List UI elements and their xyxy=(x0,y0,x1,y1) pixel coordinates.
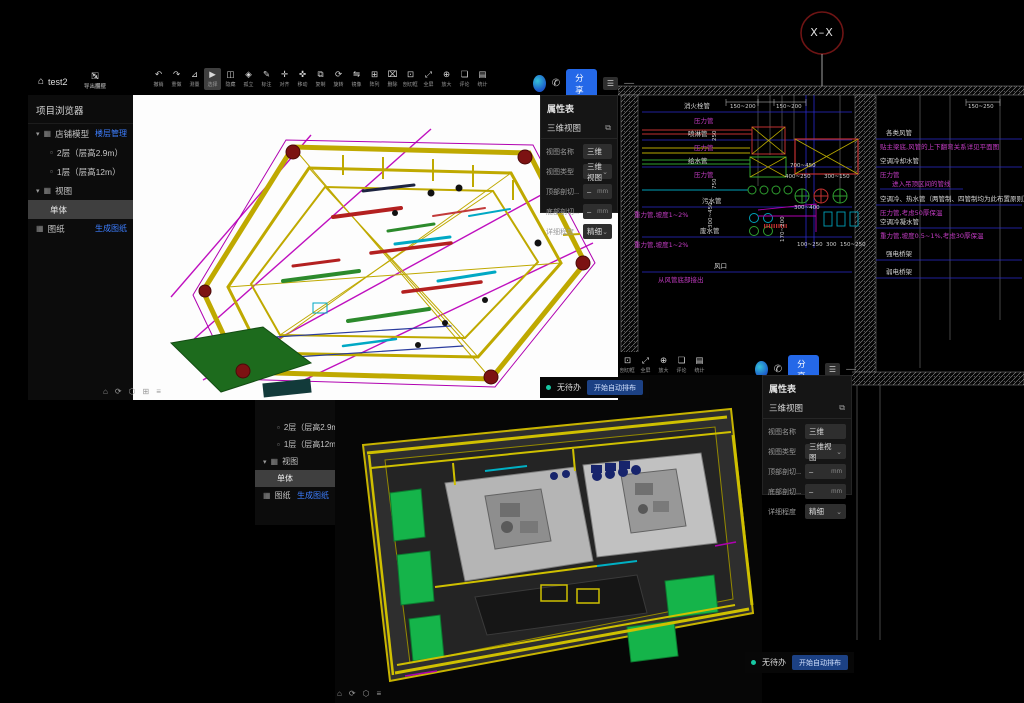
dimension-label: 150~250 xyxy=(968,104,994,110)
chevron-down-icon: ⌄ xyxy=(602,168,608,176)
cad-annotation: 强电桥架 xyxy=(886,248,912,258)
property-value[interactable]: 三维视图⌄ xyxy=(583,164,612,179)
view-control-icon[interactable]: ≡ xyxy=(377,689,382,698)
status-badge: 无待办 xyxy=(762,657,786,668)
cad-annotation: 空调冷却水管 xyxy=(880,155,919,165)
viewer-window-2: ⊡ 剖切框 ⤢ 全屏 ⊕ 放大 ❏ 评论 xyxy=(255,352,852,703)
expander-icon[interactable]: ▾ xyxy=(36,187,40,195)
toolbar-button-annotate[interactable]: ✎ 标注 xyxy=(258,68,275,90)
phone-icon[interactable]: ✆ xyxy=(774,364,782,375)
property-panel: 属性表 三维视图 ⧉ 视图名称 三维 视图类型 xyxy=(762,375,852,495)
toolbar-label: 测量 xyxy=(190,80,200,87)
toolbar-label: 标注 xyxy=(262,80,272,87)
copy-icon[interactable]: ⧉ xyxy=(839,403,845,413)
node-icon: ▦ xyxy=(36,224,44,233)
property-value[interactable]: –mm xyxy=(583,184,612,199)
toolbar-icon: ⊡ xyxy=(407,70,414,79)
dimension-label: 150~200 xyxy=(730,104,756,110)
cad-annotation: 压力管 xyxy=(694,115,714,125)
toolbar-button-undo[interactable]: ↶ 撤销 xyxy=(150,68,167,90)
project-browser-panel: 项目浏览器 ▾ ▦ 店铺模型 楼层管理 ▫ 2层（层高2.9m） xyxy=(28,95,133,400)
property-value[interactable]: 三维 xyxy=(583,144,612,159)
dimension-label: 750 xyxy=(712,179,718,190)
property-section: 三维视图 ⧉ xyxy=(763,398,851,419)
auto-route-button[interactable]: 开始自动排布 xyxy=(587,380,643,395)
copy-icon[interactable]: ⧉ xyxy=(605,123,611,133)
toolbar-button-fullscreen[interactable]: ⤢ 全屏 xyxy=(637,354,654,376)
toolbar-button-align[interactable]: ✛ 对齐 xyxy=(276,68,293,90)
toolbar-button-zoom-in[interactable]: ⊕ 放大 xyxy=(655,354,672,376)
toolbar-icon: ❏ xyxy=(678,356,686,365)
tree-item-label: 1层（层高12m） xyxy=(57,166,121,178)
view-controls: ⌂⟳⬡≡ xyxy=(337,689,381,698)
property-value[interactable]: 精细⌄ xyxy=(583,224,612,239)
toolbar-button-comment[interactable]: ❏ 评论 xyxy=(673,354,690,376)
toolbar-button-measure[interactable]: ⊿ 测量 xyxy=(186,68,203,90)
expander-icon[interactable]: ▾ xyxy=(36,130,40,138)
toolbar-button-delete[interactable]: ⌧ 删除 xyxy=(384,68,401,90)
tree-item-action-link[interactable]: 生成图纸 xyxy=(297,490,329,501)
toolbar-icon: ▶ xyxy=(209,70,216,79)
node-icon: ▦ xyxy=(44,186,52,195)
phone-icon[interactable]: ✆ xyxy=(552,78,560,89)
property-panel: 属性表 三维视图 ⧉ 视图名称 三维 视图类型 xyxy=(540,95,618,213)
property-row: 视图名称 三维 xyxy=(546,144,612,159)
dimension-label: 400~250 xyxy=(785,174,811,180)
cad-annotation: 各类风管 xyxy=(886,127,912,137)
cad-annotation: 贴主梁底,风管的上下翻弯关系详见平面图 xyxy=(880,141,999,151)
cad-annotation: 重力管,坡度0.5~1%,考虑30厚保温 xyxy=(880,230,984,240)
property-value[interactable]: –mm xyxy=(805,484,846,499)
cad-annotation: 空调冷、热水管（两管制、四管制均为此布置原则） xyxy=(880,193,1024,203)
toolbar-label: 重做 xyxy=(172,80,182,87)
toolbar-button-mirror[interactable]: ⇋ 镜像 xyxy=(348,68,365,90)
desktop: X–X 消火栓管压力管喷淋管压力管给水管压力管污水管重力管,坡度1~2%废水管重… xyxy=(0,0,1024,703)
node-icon: ▫ xyxy=(50,167,53,176)
home-icon[interactable]: ⌂ xyxy=(38,76,44,87)
toolbar-icon: ⊕ xyxy=(660,356,667,365)
toolbar-icon: ▤ xyxy=(695,356,703,365)
toolbar-label: 阵列 xyxy=(370,80,380,87)
tree-item[interactable]: ▫ 1层（层高12m） xyxy=(255,436,335,453)
property-row: 底部剖切... –mm xyxy=(546,204,612,219)
property-value[interactable]: 三维 xyxy=(805,424,846,439)
toolbar-button-move[interactable]: ✜ 移动 xyxy=(294,68,311,90)
property-row: 视图类型 三维视图⌄ xyxy=(768,444,846,459)
toolbar-icon: ⟳ xyxy=(335,70,342,79)
toolbar-icon: ◫ xyxy=(226,70,234,79)
toolbar-label: 复制 xyxy=(316,80,326,87)
toolbar-button-hide[interactable]: ◫ 隐藏 xyxy=(222,68,239,90)
tree-item[interactable]: ▫ 2层（层高2.9m） xyxy=(255,419,335,436)
toolbar-icon: ⊡ xyxy=(624,356,631,365)
toolbar-icon: ❏ xyxy=(461,70,469,79)
toolbar-button-rotate[interactable]: ⟳ 旋转 xyxy=(330,68,347,90)
property-label: 详细程度 xyxy=(768,507,801,517)
cad-annotation: 给水管 xyxy=(688,155,708,165)
view-control-icon[interactable]: ⬡ xyxy=(363,689,370,698)
toolbar-icon: ⊕ xyxy=(443,70,450,79)
view-control-icon[interactable]: ⟳ xyxy=(115,387,122,396)
node-icon: ▦ xyxy=(263,491,271,500)
dimension-label: 300 xyxy=(826,242,837,248)
tree-item[interactable]: 单体 xyxy=(28,200,133,219)
share-button[interactable]: 分享 xyxy=(566,69,597,98)
dimension-label: 250 xyxy=(712,131,718,142)
toolbar-button-array[interactable]: ⊞ 阵列 xyxy=(366,68,383,90)
cad-annotation: 空调冷凝水管 xyxy=(880,216,919,226)
toolbar-button-redo[interactable]: ↷ 重做 xyxy=(168,68,185,90)
property-rows: 视图名称 三维 视图类型 三维视图⌄ 顶部剖切... xyxy=(541,144,617,239)
status-dot xyxy=(751,660,756,665)
more-button[interactable]: — xyxy=(624,78,634,89)
file-action-button-export-model[interactable]: ⇱ 导出模型 xyxy=(84,72,106,90)
user-avatar[interactable] xyxy=(533,75,546,92)
toolbar-label: 统计 xyxy=(695,366,705,373)
property-row: 顶部剖切... –mm xyxy=(768,464,846,479)
toolbar-label: 镜像 xyxy=(352,80,362,87)
cad-annotation: 风口 xyxy=(714,260,727,270)
property-section: 三维视图 ⧉ xyxy=(541,118,617,139)
chevron-down-icon: ⌄ xyxy=(602,228,608,236)
property-label: 视图类型 xyxy=(768,447,801,457)
toolbar-label: 放大 xyxy=(442,80,452,87)
window-title: ⌂ test2 xyxy=(38,76,68,87)
dimension-label: 170~200 xyxy=(780,216,786,242)
dimension-label: 300~400 xyxy=(794,205,820,211)
toolbar-icon: ▤ xyxy=(478,70,486,79)
expander-icon[interactable]: ▾ xyxy=(263,458,267,466)
toolbar-label: 全屏 xyxy=(424,80,434,87)
toolbar-label: 评论 xyxy=(677,366,687,373)
tree-item-label: 店铺模型 xyxy=(55,128,89,140)
toolbar-icon: ⊿ xyxy=(191,70,198,79)
cad-annotation: 从风管底部接出 xyxy=(658,274,704,284)
property-label: 底部剖切... xyxy=(768,487,801,497)
dimension-label: 150~250 xyxy=(840,242,866,248)
tree-item-label: 2层（层高2.9m） xyxy=(57,147,123,159)
cad-annotation: 重力管,坡度1~2% xyxy=(634,239,688,249)
section-axis-label: X–X xyxy=(806,26,838,39)
toolbar-label: 旋转 xyxy=(334,80,344,87)
property-label: 顶部剖切... xyxy=(546,187,579,197)
property-row: 顶部剖切... –mm xyxy=(546,184,612,199)
tree-item[interactable]: ▦ 图纸 生成图纸 xyxy=(255,487,335,504)
toolbar-label: 剖切框 xyxy=(620,366,635,373)
node-icon: ▫ xyxy=(277,423,280,432)
status-bar: 无待办 开始自动排布 xyxy=(745,652,854,673)
cad-annotation: 弱电桥架 xyxy=(886,266,912,276)
project-tree: ▾ ▦ 店铺模型 楼层管理 ▫ 2层（层高2.9m） xyxy=(28,124,133,238)
property-value[interactable]: 精细⌄ xyxy=(805,504,846,519)
tree-item-label: 图纸 xyxy=(48,223,65,235)
property-panel-title: 属性表 xyxy=(763,376,851,398)
project-browser-title: 项目浏览器 xyxy=(28,95,133,124)
cad-annotation: 重力管,坡度1~2% xyxy=(634,209,688,219)
tree-item-label: 单体 xyxy=(50,204,67,216)
toolbar-button-select[interactable]: ▶ 选择 xyxy=(204,68,221,90)
status-badge: 无待办 xyxy=(557,382,581,393)
view-control-icon[interactable]: ⌂ xyxy=(337,689,342,698)
view-controls: ⌂⟳⬡⊞≡ xyxy=(103,387,161,396)
property-row: 详细程度 精细⌄ xyxy=(546,224,612,239)
auto-route-button[interactable]: 开始自动排布 xyxy=(792,655,848,670)
property-label: 视图名称 xyxy=(768,427,801,437)
cad-annotation: 进入吊顶区间的管线 xyxy=(892,178,951,188)
property-label: 底部剖切... xyxy=(546,207,579,217)
property-section-label: 三维视图 xyxy=(547,122,581,134)
toolbar-icon: ⊞ xyxy=(371,70,378,79)
chevron-down-icon: ⌄ xyxy=(836,448,842,456)
node-icon: ▦ xyxy=(271,457,279,466)
property-rows: 视图名称 三维 视图类型 三维视图⌄ 顶部剖切... xyxy=(763,424,851,519)
property-value[interactable]: –mm xyxy=(583,204,612,219)
dimension-label: 100~250 xyxy=(797,242,823,248)
property-row: 视图名称 三维 xyxy=(768,424,846,439)
toolbar-label: 剖切框 xyxy=(403,80,418,87)
cad-annotation: 消火栓管 xyxy=(684,100,710,110)
toolbar-icon: ◈ xyxy=(245,70,252,79)
tree-item[interactable]: ▾ ▦ 视图 xyxy=(255,453,335,470)
dimension-label: 300~450 xyxy=(708,202,714,228)
tree-item-action-link[interactable]: 生成图纸 xyxy=(95,223,127,234)
view-control-icon[interactable]: ⬡ xyxy=(129,387,136,396)
view-control-icon[interactable]: ⌂ xyxy=(103,387,108,396)
cad-annotation: 压力管 xyxy=(694,142,714,152)
toolbar-button-fullscreen[interactable]: ⤢ 全屏 xyxy=(420,68,437,90)
property-label: 视图类型 xyxy=(546,167,579,177)
status-dot xyxy=(546,385,551,390)
toolbar-button-isolate[interactable]: ◈ 孤立 xyxy=(240,68,257,90)
toolbar-label: 全屏 xyxy=(641,366,651,373)
toolbar-icon: ⌧ xyxy=(388,70,398,79)
menu-button[interactable]: ☰ xyxy=(603,77,618,90)
toolbar-label: 移动 xyxy=(298,80,308,87)
toolbar-icon: ↶ xyxy=(155,70,162,79)
toolbar-label: 对齐 xyxy=(280,80,290,87)
property-row: 视图类型 三维视图⌄ xyxy=(546,164,612,179)
toolbar-icon: ✎ xyxy=(263,70,270,79)
cad-annotation: 压力管 xyxy=(694,169,714,179)
tree-item-label: 视图 xyxy=(55,185,72,197)
tree-item[interactable]: 单体 xyxy=(255,470,335,487)
file-action-label: 导出模型 xyxy=(84,82,106,90)
toolbar-button-statistics[interactable]: ▤ 统计 xyxy=(474,68,491,90)
toolbar-label: 选择 xyxy=(208,80,218,87)
tree-item[interactable]: ▾ ▦ 店铺模型 楼层管理 xyxy=(28,124,133,143)
tree-item-label: 视图 xyxy=(282,456,298,467)
property-panel-title: 属性表 xyxy=(541,96,617,118)
toolbar-label: 删除 xyxy=(388,80,398,87)
toolbar: ⊡ 剖切框 ⤢ 全屏 ⊕ 放大 ❏ 评论 xyxy=(619,354,708,376)
share-cluster: ✆ 分享 ☰ — xyxy=(533,69,634,98)
toolbar-label: 放大 xyxy=(659,366,669,373)
toolbar-icon: ✛ xyxy=(281,70,288,79)
property-value[interactable]: 三维视图⌄ xyxy=(805,444,846,459)
property-label: 详细程度 xyxy=(546,227,579,237)
toolbar-icon: ⧉ xyxy=(317,70,323,79)
tree-item-action-link[interactable]: 楼层管理 xyxy=(95,128,127,139)
chevron-down-icon: ⌄ xyxy=(836,508,842,516)
tree-item-label: 图纸 xyxy=(275,490,291,501)
tree-item[interactable]: ▦ 图纸 生成图纸 xyxy=(28,219,133,238)
project-title: test2 xyxy=(48,77,68,87)
toolbar-button-copy[interactable]: ⧉ 复制 xyxy=(312,68,329,90)
dimension-label: 700~450 xyxy=(790,163,816,169)
node-icon: ▦ xyxy=(44,129,52,138)
toolbar-button-comment[interactable]: ❏ 评论 xyxy=(456,68,473,90)
dimension-label: 300~150 xyxy=(824,174,850,180)
dimension-label: 150~200 xyxy=(776,104,802,110)
property-label: 视图名称 xyxy=(546,147,579,157)
toolbar-label: 统计 xyxy=(478,80,488,87)
toolbar-button-statistics[interactable]: ▤ 统计 xyxy=(691,354,708,376)
property-section-label: 三维视图 xyxy=(769,402,803,414)
property-label: 顶部剖切... xyxy=(768,467,801,477)
toolbar-icon: ✜ xyxy=(299,70,306,79)
property-row: 详细程度 精细⌄ xyxy=(768,504,846,519)
node-icon: ▫ xyxy=(50,148,53,157)
toolbar-icon: ⤢ xyxy=(425,70,432,79)
file-action-icon: ⇱ xyxy=(91,72,99,81)
toolbar-label: 评论 xyxy=(460,80,470,87)
viewer-window-1: ⌂ test2 ⇲ 导入图纸 ⇱ 导出模型 ↶ 撤销 xyxy=(28,60,618,400)
view-control-icon[interactable]: ⟳ xyxy=(349,689,356,698)
status-bar: 无待办 开始自动排布 xyxy=(540,377,649,398)
cad-annotation: 喷淋管 xyxy=(688,128,708,138)
viewport-plant-room-model[interactable] xyxy=(335,375,762,703)
toolbar-button-section-box[interactable]: ⊡ 剖切框 xyxy=(402,68,419,90)
toolbar: ↶ 撤销 ↷ 重做 ⊿ 测量 ▶ 选择 xyxy=(150,68,491,90)
toolbar-label: 孤立 xyxy=(244,80,254,87)
node-icon: ▫ xyxy=(277,440,280,449)
tree-item[interactable]: ▫ 2层（层高2.9m） xyxy=(28,143,133,162)
tree-item[interactable]: ▫ 1层（层高12m） xyxy=(28,162,133,181)
property-row: 底部剖切... –mm xyxy=(768,484,846,499)
view-control-icon[interactable]: ⊞ xyxy=(143,387,150,396)
toolbar-label: 撤销 xyxy=(154,80,164,87)
toolbar-icon: ↷ xyxy=(173,70,180,79)
toolbar-icon: ⇋ xyxy=(353,70,360,79)
toolbar-label: 隐藏 xyxy=(226,80,236,87)
property-value[interactable]: –mm xyxy=(805,464,846,479)
more-button[interactable]: — xyxy=(846,364,856,375)
toolbar-button-section-box[interactable]: ⊡ 剖切框 xyxy=(619,354,636,376)
toolbar-icon: ⤢ xyxy=(642,356,649,365)
toolbar-button-zoom-in[interactable]: ⊕ 放大 xyxy=(438,68,455,90)
view-control-icon[interactable]: ≡ xyxy=(156,387,161,396)
tree-item[interactable]: ▾ ▦ 视图 xyxy=(28,181,133,200)
tree-item-label: 单体 xyxy=(277,473,293,484)
